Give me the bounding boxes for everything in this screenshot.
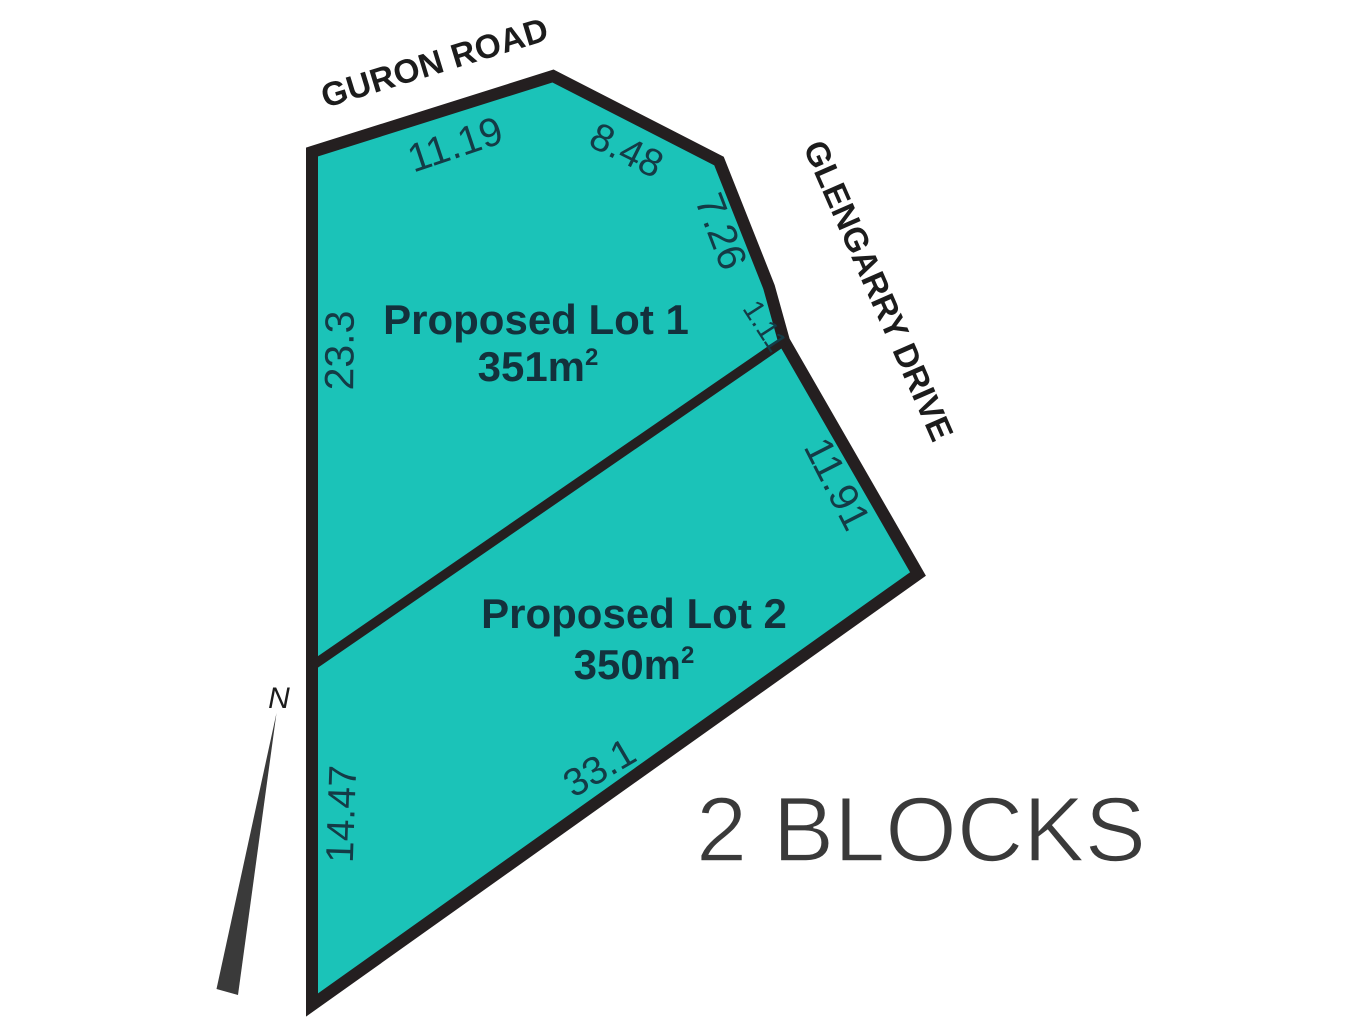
svg-text:23.3: 23.3 [316, 310, 363, 390]
svg-text:2 BLOCKS: 2 BLOCKS [696, 779, 1146, 881]
svg-text:Proposed Lot 2: Proposed Lot 2 [481, 590, 787, 637]
svg-text:14.47: 14.47 [319, 764, 365, 863]
svg-text:350m2: 350m2 [574, 641, 695, 688]
svg-text:351m2: 351m2 [478, 343, 599, 390]
svg-text:Proposed Lot 1: Proposed Lot 1 [383, 296, 689, 343]
svg-text:N: N [268, 682, 290, 715]
